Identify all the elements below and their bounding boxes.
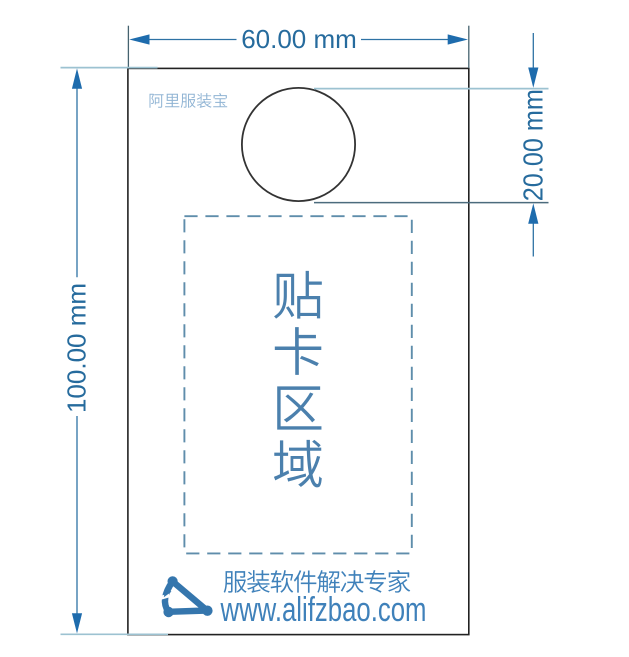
svg-text:100.00 mm: 100.00 mm [62, 283, 92, 413]
svg-text:20.00 mm: 20.00 mm [517, 89, 548, 201]
svg-text:60.00 mm: 60.00 mm [241, 24, 357, 54]
svg-text:www.alifzbao.com: www.alifzbao.com [220, 591, 427, 629]
